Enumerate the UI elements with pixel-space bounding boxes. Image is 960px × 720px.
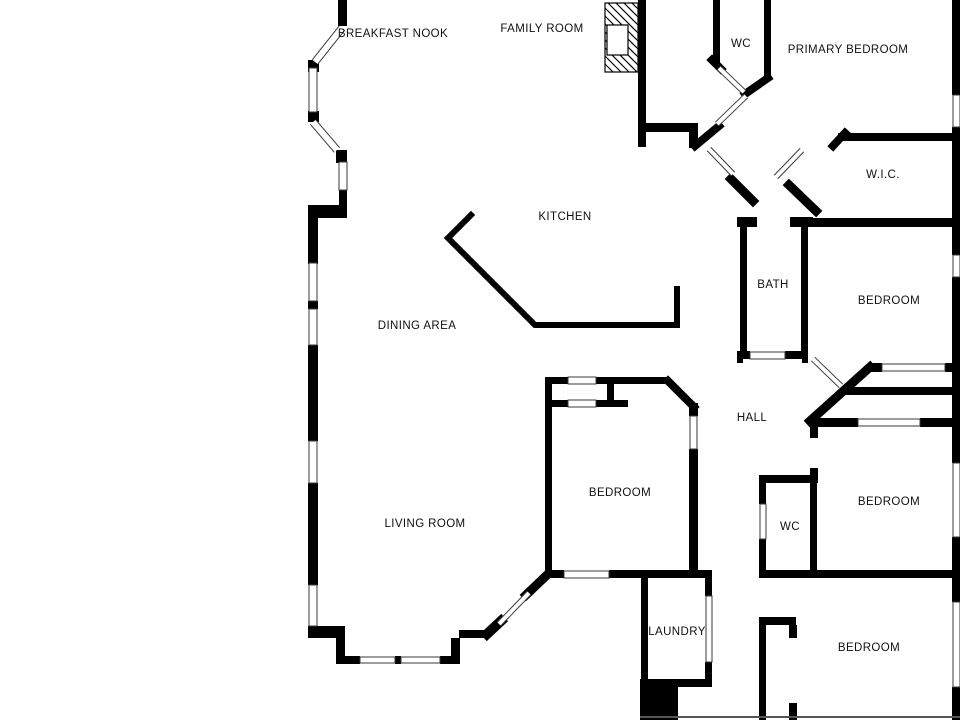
window — [953, 95, 960, 127]
door-leaf — [709, 149, 733, 174]
door-leaf — [719, 98, 748, 126]
wall — [339, 189, 347, 206]
window — [953, 255, 960, 277]
window — [706, 596, 712, 662]
wall — [545, 377, 568, 384]
kitchen-counter — [448, 215, 677, 325]
room-label-wc-top: WC — [731, 38, 751, 50]
wall — [845, 387, 960, 395]
door-leaf — [715, 94, 744, 122]
window — [690, 416, 697, 449]
room-label-bath: BATH — [757, 279, 788, 291]
window — [309, 585, 317, 626]
wall — [596, 400, 628, 407]
wall-diagonal — [789, 185, 816, 211]
window — [309, 441, 317, 483]
window — [568, 400, 596, 407]
room-label-bedroom-bottom: BEDROOM — [838, 642, 900, 654]
room-label-living-room: LIVING ROOM — [384, 518, 465, 530]
door-leaf — [774, 148, 800, 175]
floorplan-page: BREAKFAST NOOKFAMILY ROOMWCPRIMARY BEDRO… — [0, 0, 960, 720]
window — [858, 419, 920, 426]
cut-line — [640, 716, 960, 718]
door-leaf — [811, 361, 839, 388]
wall — [759, 475, 817, 483]
window — [953, 602, 960, 687]
wall-diagonal — [833, 133, 845, 146]
wall — [952, 127, 960, 255]
fireplace-hatch — [624, 3, 638, 17]
wall — [308, 345, 318, 441]
wall — [759, 617, 766, 720]
wall-diagonal — [731, 179, 753, 201]
room-label-bedroom-right: BEDROOM — [858, 496, 920, 508]
wall — [308, 483, 318, 585]
wall — [689, 449, 698, 577]
room-label-primary-bedroom: PRIMARY BEDROOM — [788, 44, 909, 56]
window — [953, 463, 960, 537]
window — [339, 162, 347, 190]
fireplace-hatch — [632, 3, 638, 9]
wall — [737, 351, 743, 363]
wall — [640, 679, 678, 720]
door-leaf — [501, 595, 531, 626]
room-label-dining-area: DINING AREA — [378, 320, 457, 332]
room-label-breakfast-nook: BREAKFAST NOOK — [338, 28, 448, 40]
window — [309, 263, 317, 301]
wall — [705, 578, 712, 596]
window — [360, 657, 395, 663]
wall — [451, 638, 460, 664]
wall-diagonal — [526, 574, 548, 595]
wall — [308, 218, 318, 264]
room-label-bedroom-upper-right: BEDROOM — [858, 295, 920, 307]
window — [309, 68, 317, 112]
wall — [764, 0, 771, 78]
wall-diagonal — [745, 78, 768, 94]
door-leaf — [815, 357, 843, 384]
wall — [638, 123, 698, 132]
wall — [395, 656, 401, 664]
fireplace-firebox — [607, 25, 628, 55]
wall — [759, 483, 766, 504]
door-leaf — [499, 593, 529, 624]
room-label-bedroom-middle: BEDROOM — [589, 487, 651, 499]
room-label-hall: HALL — [737, 412, 768, 424]
wall — [802, 351, 808, 363]
wall — [308, 626, 345, 638]
wall — [336, 150, 347, 163]
wall — [641, 578, 648, 682]
floorplan-canvas: BREAKFAST NOOKFAMILY ROOMWCPRIMARY BEDRO… — [0, 0, 960, 720]
wall — [952, 537, 960, 602]
door-leaf — [707, 151, 731, 176]
wall — [343, 656, 360, 664]
door-leaf — [711, 147, 735, 172]
room-label-laundry: LAUNDRY — [648, 626, 706, 638]
fireplace-hatch — [605, 64, 613, 72]
wall — [545, 377, 552, 577]
door-leaf — [721, 66, 746, 90]
fireplace-hatch — [605, 56, 621, 72]
wall — [740, 217, 747, 358]
wall — [952, 0, 960, 95]
door-leaf — [717, 96, 746, 124]
wall — [338, 0, 347, 26]
wall — [713, 0, 720, 63]
room-label-wic: W.I.C. — [866, 169, 900, 181]
door-leaf — [813, 359, 841, 386]
wall — [308, 301, 318, 309]
wall — [952, 277, 960, 463]
wall — [759, 570, 960, 578]
window — [401, 657, 440, 663]
wall — [308, 111, 319, 122]
wall — [801, 217, 808, 353]
wall — [790, 218, 960, 227]
window — [750, 352, 785, 359]
room-label-family-room: FAMILY ROOM — [500, 23, 583, 35]
door-leaf — [497, 591, 527, 622]
wall — [810, 475, 817, 577]
window — [309, 309, 317, 345]
door-leaf — [778, 152, 804, 179]
window — [568, 377, 596, 384]
wall — [308, 205, 347, 218]
room-label-wc-bottom: WC — [780, 521, 800, 533]
wall — [789, 625, 797, 638]
window — [882, 364, 945, 371]
wall — [952, 687, 960, 720]
wall — [838, 133, 960, 141]
wall-diagonal — [668, 381, 694, 407]
wall-diagonal — [695, 126, 719, 146]
wall — [643, 570, 712, 578]
wall — [609, 570, 643, 578]
window — [564, 571, 609, 578]
room-label-kitchen: KITCHEN — [538, 211, 591, 223]
door-leaf — [717, 70, 742, 94]
door-leaf — [776, 150, 802, 177]
window-diagonal — [313, 122, 337, 150]
door-leaf — [719, 68, 744, 92]
window — [760, 504, 766, 539]
wall — [766, 617, 796, 625]
wall — [551, 400, 568, 407]
